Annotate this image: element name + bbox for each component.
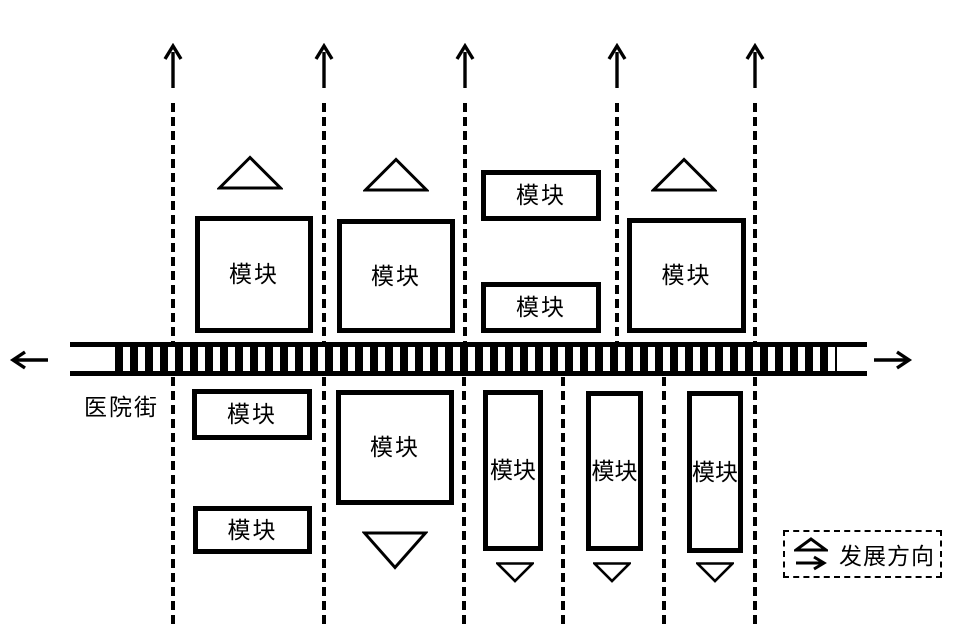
up-arrow-icon xyxy=(606,43,628,89)
up-arrow-icon xyxy=(162,43,184,89)
module-box: 模块 xyxy=(481,282,601,333)
growth-down-triangle-icon xyxy=(362,531,428,570)
corridor-dashed-line xyxy=(662,377,666,628)
corridor-dashed-line xyxy=(753,103,757,342)
corridor-dashed-line xyxy=(322,103,326,342)
corridor-dashed-line xyxy=(463,103,467,342)
module-box: 模块 xyxy=(481,170,601,221)
growth-up-triangle-icon xyxy=(651,157,717,193)
up-arrow-icon xyxy=(744,43,766,89)
module-label: 模块 xyxy=(229,263,279,286)
corridor-dashed-line xyxy=(171,103,175,342)
right-arrow-icon xyxy=(872,349,916,371)
corridor-dashed-line xyxy=(561,377,565,628)
hospital-street-diagram: 模块 模块 模块 模块 模块 医院街 模块 模块 模块 模块 模块 模块 xyxy=(0,0,956,640)
module-box: 模块 xyxy=(193,506,312,554)
corridor-dashed-line xyxy=(615,103,619,342)
module-box: 模块 xyxy=(337,219,455,333)
module-box: 模块 xyxy=(687,391,743,553)
growth-down-triangle-icon xyxy=(496,562,534,583)
street-hatch-pattern xyxy=(115,347,837,371)
module-box: 模块 xyxy=(336,390,454,505)
module-label: 模块 xyxy=(662,264,712,287)
growth-up-triangle-icon xyxy=(217,155,283,191)
corridor-dashed-line xyxy=(753,377,757,628)
left-arrow-icon xyxy=(6,349,50,371)
module-label: 模块 xyxy=(516,184,566,207)
street-label: 医院街 xyxy=(84,388,159,422)
hospital-street-band xyxy=(70,342,867,376)
legend-box: 发展方向 xyxy=(783,530,942,578)
module-box: 模块 xyxy=(192,389,312,440)
module-box: 模块 xyxy=(195,216,313,333)
module-label: 模块 xyxy=(228,519,278,542)
growth-up-triangle-icon xyxy=(794,537,828,552)
growth-up-triangle-icon xyxy=(363,157,429,193)
corridor-dashed-line xyxy=(462,377,466,628)
module-label: 模块 xyxy=(592,460,638,483)
module-label: 模块 xyxy=(490,459,536,482)
corridor-dashed-line xyxy=(322,377,326,628)
module-label: 模块 xyxy=(692,461,738,484)
module-label: 模块 xyxy=(227,403,277,426)
module-box: 模块 xyxy=(586,391,643,551)
legend-label: 发展方向 xyxy=(839,537,935,571)
corridor-dashed-line xyxy=(171,377,175,628)
module-box: 模块 xyxy=(483,390,543,551)
module-label: 模块 xyxy=(371,265,421,288)
legend-symbols xyxy=(793,537,829,571)
module-label: 模块 xyxy=(516,296,566,319)
right-arrow-icon xyxy=(794,555,828,571)
growth-down-triangle-icon xyxy=(593,562,631,583)
module-box: 模块 xyxy=(627,218,746,333)
growth-down-triangle-icon xyxy=(696,562,734,583)
module-label: 模块 xyxy=(370,436,420,459)
up-arrow-icon xyxy=(313,43,335,89)
up-arrow-icon xyxy=(454,43,476,89)
